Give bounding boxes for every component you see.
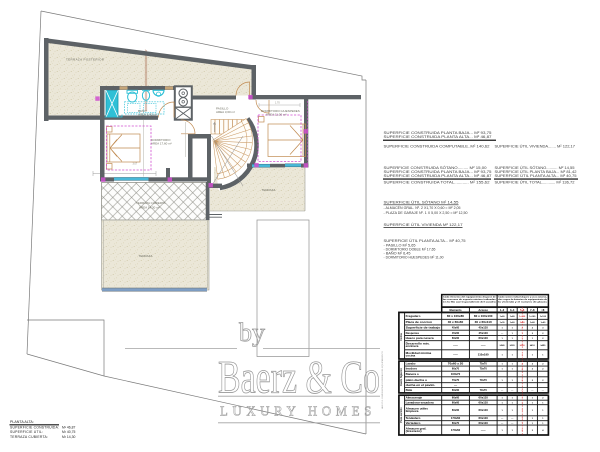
svg-text:———: ——— bbox=[453, 344, 458, 347]
svg-text:en la fila correspondiente del: en la fila correspondiente del cuadro bbox=[443, 301, 497, 304]
svg-text:≥410: ≥410 bbox=[530, 344, 536, 347]
svg-text:1–2: 1–2 bbox=[500, 308, 505, 312]
svg-text:Cocina: Cocina bbox=[401, 332, 403, 340]
svg-text:1x60: 1x60 bbox=[500, 316, 506, 318]
svg-text:- PLAZA DE GARAJE Nº. 1 X 5,0: - PLAZA DE GARAJE Nº. 1 X 5,00 X 2,50 = … bbox=[384, 211, 468, 215]
svg-text:Pieza servicio: Pieza servicio bbox=[401, 407, 403, 423]
svg-text:170x60: 170x60 bbox=[451, 416, 461, 420]
svg-text:SUPERFICIE ÚTIL SÓTANO: SUPERFICIE ÚTIL SÓTANO M² 14,55 bbox=[384, 200, 459, 205]
svg-text:60x60: 60x60 bbox=[452, 396, 460, 400]
svg-text:Despensa: Despensa bbox=[406, 332, 420, 335]
svg-text:Almacenaje: Almacenaje bbox=[406, 397, 423, 400]
svg-text:60x110: 60x110 bbox=[479, 421, 489, 425]
svg-text:cocina: cocina bbox=[406, 354, 416, 357]
svg-text:Lavadora+secadora: Lavadora+secadora bbox=[406, 401, 435, 404]
svg-text:AREA 14,30 m²: AREA 14,30 m² bbox=[139, 205, 160, 209]
svg-text:Hueco para nevera: Hueco para nevera bbox=[406, 337, 435, 340]
svg-text:7–8: 7–8 bbox=[530, 308, 535, 312]
svg-text:———: ——— bbox=[481, 429, 486, 432]
svg-text:SUPERFICIE CONSTRUIDA PLANTA A: SUPERFICIE CONSTRUIDA PLANTA ALTA... M² … bbox=[384, 174, 492, 178]
svg-text:60x110: 60x110 bbox=[479, 400, 489, 404]
svg-text:TERRAZA: TERRAZA bbox=[139, 254, 153, 258]
svg-text:Superficie de trabajo: Superficie de trabajo bbox=[406, 327, 441, 330]
svg-text:SUPERFICIE CONSTRUIDA PLANTA A: SUPERFICIE CONSTRUIDA PLANTA ALTA... M² … bbox=[384, 135, 492, 139]
svg-text:TERRAZA POSTERIOR: TERRAZA POSTERIOR bbox=[66, 58, 105, 62]
svg-text:- ALMACÉN GRAL. Nº. 2 X1,70 X: - ALMACÉN GRAL. Nº. 2 X1,70 X 0,60 = M² … bbox=[384, 205, 461, 210]
svg-text:Placa de coccion: Placa de coccion bbox=[406, 321, 433, 324]
svg-text:100x70: 100x70 bbox=[451, 372, 461, 376]
svg-text:SUPERFICIE CONSTRUIDA TOTAL...: SUPERFICIE CONSTRUIDA TOTAL............ … bbox=[384, 180, 490, 184]
svg-text:60x70: 60x70 bbox=[452, 421, 460, 425]
svg-text:70x70: 70x70 bbox=[480, 388, 488, 392]
svg-text:Fregadero: Fregadero bbox=[406, 315, 421, 318]
svg-text:AREA 3,60 m²: AREA 3,60 m² bbox=[216, 110, 235, 114]
svg-text:Cuarto higienico: Cuarto higienico bbox=[400, 367, 403, 386]
svg-text:la vivienda y el numero de pla: la vivienda y el numero de plazas bbox=[498, 302, 548, 304]
svg-text:45x110: 45x110 bbox=[479, 331, 489, 335]
svg-text:1x30: 1x30 bbox=[500, 322, 506, 324]
svg-text:70x70: 70x70 bbox=[452, 378, 460, 382]
svg-text:SUPERFICIE UTIL:: SUPERFICIE UTIL: bbox=[10, 430, 43, 434]
svg-text:SUPERFICIE CONSTRUIDA COMPUTAB: SUPERFICIE CONSTRUIDA COMPUTABLE..M² 140… bbox=[384, 145, 490, 149]
svg-text:60x60: 60x60 bbox=[452, 336, 460, 340]
svg-text:SUPERFICIE ÚTIL VIVIENDA......: SUPERFICIE ÚTIL VIVIENDA....... M² 122,1… bbox=[495, 144, 576, 149]
svg-text:1x100: 1x100 bbox=[529, 316, 536, 318]
svg-text:3.07: 3.07 bbox=[133, 163, 138, 166]
svg-text:60x60: 60x60 bbox=[452, 400, 460, 404]
svg-text:- DORMITORIO HUESPEDES M² 11,: - DORMITORIO HUESPEDES M² 11,00 bbox=[384, 255, 444, 259]
svg-text:60x110: 60x110 bbox=[479, 408, 489, 412]
svg-text:AREA 6,40 m²: AREA 6,40 m² bbox=[138, 112, 157, 116]
svg-text:Elemento: Elemento bbox=[449, 308, 461, 312]
svg-text:by: by bbox=[239, 318, 265, 347]
svg-text:60x70: 60x70 bbox=[452, 367, 460, 371]
svg-text:M² 14,30: M² 14,30 bbox=[62, 435, 75, 439]
svg-text:1x60: 1x60 bbox=[530, 322, 536, 324]
svg-text:1x80: 1x80 bbox=[510, 316, 516, 318]
svg-text:1x100: 1x100 bbox=[519, 316, 526, 318]
svg-text:45x110: 45x110 bbox=[479, 326, 489, 330]
svg-text:≥360: ≥360 bbox=[520, 344, 526, 347]
svg-text:≥320: ≥320 bbox=[510, 344, 516, 347]
svg-text:Banera o: Banera o bbox=[406, 373, 420, 376]
svg-text:SUPERFICIE ÚTIL TOTAL.........: SUPERFICIE ÚTIL TOTAL............ M² 136… bbox=[495, 179, 575, 184]
svg-text:M² 40,75: M² 40,75 bbox=[62, 430, 75, 434]
svg-text:ducha en el pavim.: ducha en el pavim. bbox=[406, 384, 436, 387]
svg-text:Acceso: Acceso bbox=[478, 308, 488, 312]
svg-text:Lavabo: Lavabo bbox=[406, 363, 416, 366]
svg-text:1x60: 1x60 bbox=[520, 322, 526, 324]
svg-text:plato ducha o: plato ducha o bbox=[406, 379, 428, 382]
svg-text:Inodoro: Inodoro bbox=[406, 368, 418, 371]
svg-text:(trastero): (trastero) bbox=[406, 430, 422, 433]
svg-text:M² 46,87: M² 46,87 bbox=[62, 426, 75, 430]
svg-text:70x70: 70x70 bbox=[480, 367, 488, 371]
svg-text:1x100: 1x100 bbox=[540, 316, 547, 318]
svg-text:——: —— bbox=[454, 384, 457, 387]
svg-text:110x190: 110x190 bbox=[478, 352, 489, 356]
svg-text:SUPERFICIE CONSTRUIDA:: SUPERFICIE CONSTRUIDA: bbox=[10, 426, 59, 430]
svg-text:1x60: 1x60 bbox=[510, 322, 516, 324]
svg-text:80 x 100x100: 80 x 100x100 bbox=[474, 314, 493, 318]
svg-text:LUXURY HOMES: LUXURY HOMES bbox=[220, 404, 376, 419]
svg-text:70x60 x 20: 70x60 x 20 bbox=[448, 362, 464, 366]
svg-text:45x60: 45x60 bbox=[452, 326, 460, 330]
svg-text:TERRAZA CUBIERTA:: TERRAZA CUBIERTA: bbox=[10, 435, 48, 439]
svg-text:60x60: 60x60 bbox=[452, 408, 460, 412]
svg-text:———: ——— bbox=[481, 344, 486, 347]
svg-text:Bide: Bide bbox=[406, 389, 413, 392]
svg-text:TERRAZA: TERRAZA bbox=[262, 188, 276, 192]
svg-text:SUPERFICIE ÚTIL VIVIENDA: SUPERFICIE ÚTIL VIVIENDA M² 122,17 bbox=[384, 222, 463, 227]
svg-text:5–6: 5–6 bbox=[520, 308, 525, 312]
svg-text:PLANTA ALTA:: PLANTA ALTA: bbox=[10, 420, 34, 424]
svg-text:SUPERFICIE ÚTIL PLANTA ALTA...: SUPERFICIE ÚTIL PLANTA ALTA... M² 40,75 bbox=[495, 173, 577, 178]
svg-text:70x70: 70x70 bbox=[480, 378, 488, 382]
svg-text:60x110: 60x110 bbox=[479, 416, 489, 420]
svg-text:AREA 17,60 m²: AREA 17,60 m² bbox=[151, 141, 172, 145]
svg-text:3–4: 3–4 bbox=[510, 308, 515, 312]
svg-text:30 x 60x60: 30 x 60x60 bbox=[448, 320, 464, 324]
svg-text:Tendedero: Tendedero bbox=[406, 417, 421, 420]
svg-text:Baerz & Co: Baerz & Co bbox=[218, 352, 380, 404]
svg-text:80 x 100x80: 80 x 100x80 bbox=[447, 314, 465, 318]
svg-text:AREA 11,00 m²: AREA 11,00 m² bbox=[266, 112, 286, 116]
svg-text:60x60: 60x60 bbox=[452, 388, 460, 392]
svg-text:30 x 60x110: 30 x 60x110 bbox=[475, 320, 493, 324]
svg-text:ANEJO 1. DIMENSIONES MINIMAS D: ANEJO 1. DIMENSIONES MINIMAS DEL EQUIPAM… bbox=[381, 351, 384, 409]
svg-text:60x110: 60x110 bbox=[479, 336, 489, 340]
svg-text:≥450: ≥450 bbox=[540, 344, 546, 347]
svg-text:limpieza: limpieza bbox=[406, 410, 420, 413]
svg-text:60x110: 60x110 bbox=[479, 396, 489, 400]
svg-text:70x70: 70x70 bbox=[480, 362, 488, 366]
svg-text:1x60: 1x60 bbox=[540, 322, 546, 324]
svg-text:1.70: 1.70 bbox=[275, 102, 280, 105]
svg-text:encimera: encimera bbox=[406, 345, 420, 348]
svg-text:170x60: 170x60 bbox=[451, 428, 461, 432]
svg-text:≥240: ≥240 bbox=[500, 344, 506, 347]
svg-text:Vertedero: Vertedero bbox=[406, 422, 421, 425]
svg-text:TERRAZA CUBIERTA: TERRAZA CUBIERTA bbox=[136, 201, 166, 205]
svg-text:45x60: 45x60 bbox=[452, 331, 460, 335]
svg-text:———: ——— bbox=[453, 353, 458, 356]
